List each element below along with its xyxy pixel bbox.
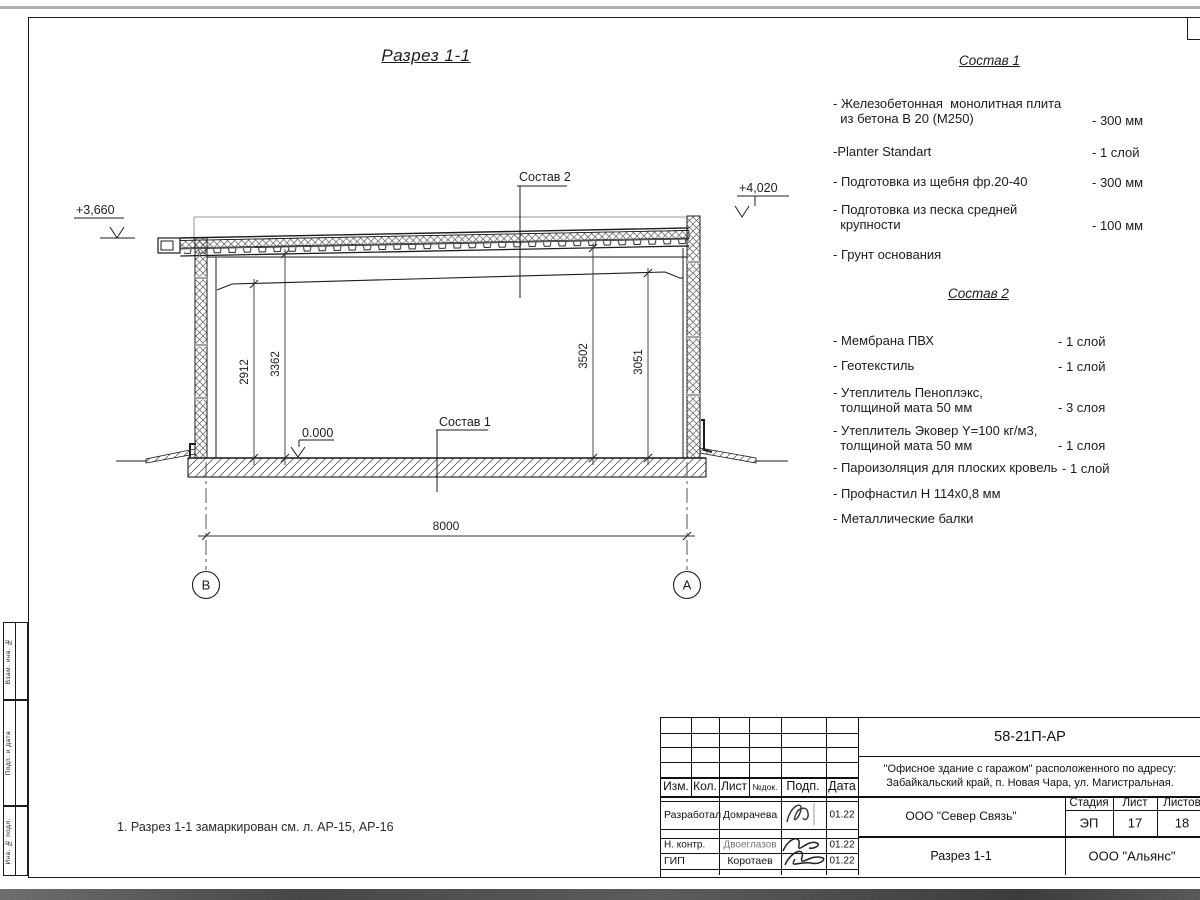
composition1-value: - 300 мм xyxy=(1092,113,1143,128)
right-apron xyxy=(700,448,788,463)
composition2-item: - Мембрана ПВХ xyxy=(833,334,1068,349)
dim-right-inner: 3051 xyxy=(633,349,645,375)
dim-left-outer: 3362 xyxy=(270,351,282,377)
tb-line xyxy=(1065,796,1066,875)
composition2-value: - 3 слоя xyxy=(1058,400,1105,415)
tb-designer: ООО "Альянс" xyxy=(1089,849,1176,864)
composition2-item: - Утеплитель Эковер Y=100 кг/м3, толщино… xyxy=(833,424,1068,453)
roof-beams xyxy=(207,257,687,290)
floor-slab xyxy=(188,458,706,477)
tb-project-line1: "Офисное здание с гаражом" расположенног… xyxy=(884,763,1177,775)
tb-line xyxy=(661,853,858,854)
elevation-right-value: +4,020 xyxy=(739,181,778,195)
axis-B: В xyxy=(193,462,220,599)
eave-drip-detail xyxy=(158,238,180,253)
tb-sheets-label: Листов xyxy=(1163,797,1200,809)
tb-line xyxy=(691,718,692,796)
composition2-item: - Профнастил Н 114х0,8 мм xyxy=(833,487,1068,502)
tb-col-list: Лист xyxy=(721,779,747,793)
signature xyxy=(783,800,825,828)
tb-sheet-title: Разрез 1-1 xyxy=(930,849,991,863)
tb-line xyxy=(661,796,858,798)
dim-span: 8000 xyxy=(433,519,460,533)
tb-role: ГИП xyxy=(664,855,685,867)
dimension-8000: 8000 xyxy=(198,519,695,540)
drawing-sheet: Взам. инв. № Подп. и дата Инв. № подл. xyxy=(0,0,1200,900)
tb-role: Н. контр. xyxy=(664,840,705,851)
tb-line xyxy=(858,836,1200,838)
composition1-value: - 1 слой xyxy=(1092,145,1140,160)
elevation-mark-left: +3,660 xyxy=(74,203,135,238)
composition2-value: - 1 слой xyxy=(1058,359,1106,374)
tb-line xyxy=(1065,810,1200,811)
tb-line xyxy=(858,796,1200,798)
tb-line xyxy=(661,869,858,870)
tb-sheet-value: 17 xyxy=(1128,816,1142,831)
composition2-item: - Металлические балки xyxy=(833,512,1068,527)
axis-A: А xyxy=(674,462,701,599)
signature xyxy=(779,835,827,873)
composition2-title: Состав 2 xyxy=(948,286,1009,301)
tb-line xyxy=(858,756,1200,757)
tb-date: 01.22 xyxy=(829,840,854,851)
dim-left-inner: 2912 xyxy=(239,359,251,385)
composition1-item: - Грунт основания xyxy=(833,248,1073,263)
dim-right-outer: 3502 xyxy=(578,343,590,369)
composition2-value: - 1 слоя xyxy=(1058,438,1105,453)
tb-line xyxy=(1113,796,1114,836)
dimension-2912: 2912 xyxy=(239,279,258,465)
tb-line xyxy=(661,733,858,734)
composition1-value: - 100 мм xyxy=(1092,218,1143,233)
sostav2-callout: Состав 2 xyxy=(519,170,571,184)
composition2-value: - 1 слой xyxy=(1058,334,1106,349)
tb-line xyxy=(661,829,858,830)
tb-stage-value: ЭП xyxy=(1080,816,1099,831)
tb-line xyxy=(661,747,858,748)
tb-col-podp: Подп. xyxy=(786,779,819,793)
composition1-item: - Железобетонная монолитная плита из бет… xyxy=(833,97,1073,126)
composition2-value: - 1 слой xyxy=(1062,461,1110,476)
composition1-value: - 300 мм xyxy=(1092,175,1143,190)
elevation-zero-value: 0.000 xyxy=(302,426,333,440)
dimension-3502: 3502 xyxy=(578,243,597,465)
elevation-mark-zero: 0.000 xyxy=(291,426,334,457)
left-wall xyxy=(190,238,216,458)
tb-date: 01.22 xyxy=(829,810,854,821)
dimension-3051: 3051 xyxy=(633,268,652,465)
tb-sheets-value: 18 xyxy=(1175,816,1189,831)
tb-name: Двоеглазов xyxy=(723,840,776,851)
tb-col-ndok: №док. xyxy=(753,782,778,792)
tb-line xyxy=(661,762,858,763)
tb-col-data: Дата xyxy=(828,779,856,793)
tb-project-line2: Забайкальский край, п. Новая Чара, ул. М… xyxy=(886,777,1174,789)
elevation-left-value: +3,660 xyxy=(76,203,115,217)
sostav1-callout: Состав 1 xyxy=(439,415,491,429)
tb-name: Домрачева xyxy=(723,809,777,821)
composition1-title: Состав 1 xyxy=(959,53,1020,68)
roof-assembly xyxy=(180,228,689,256)
composition1-item: - Подготовка из песка средней крупности xyxy=(833,203,1073,232)
tb-role: Разработал xyxy=(664,809,721,821)
composition1-item: -Planter Standart xyxy=(833,145,1073,160)
tb-doc-number: 58-21П-АР xyxy=(994,729,1066,745)
dimension-3362: 3362 xyxy=(270,249,289,465)
tb-stage-label: Стадия xyxy=(1069,797,1108,809)
composition2-item: - Геотекстиль xyxy=(833,359,1068,374)
left-apron xyxy=(116,449,195,463)
right-wall xyxy=(683,216,712,458)
composition1-item: - Подготовка из щебня фр.20-40 xyxy=(833,175,1073,190)
title-block: Изм. Кол. Лист №док. Подп. Дата Разработ… xyxy=(660,717,1200,878)
sheet-note: 1. Разрез 1-1 замаркирован см. л. АР-15,… xyxy=(117,820,394,834)
tb-date: 01.22 xyxy=(829,856,854,867)
elevation-mark-right: +4,020 xyxy=(735,181,789,217)
sostav1-leader: Состав 1 xyxy=(436,415,491,492)
view-title: Разрез 1-1 xyxy=(366,46,486,66)
tb-line xyxy=(1157,796,1158,836)
tb-line xyxy=(749,718,750,796)
axis-label-A: А xyxy=(683,578,692,593)
tb-contractor: ООО "Север Связь" xyxy=(905,809,1016,823)
composition2-item: - Пароизоляция для плоских кровель xyxy=(833,461,1068,476)
tb-col-kol: Кол. xyxy=(693,779,717,793)
tb-sheet-label: Лист xyxy=(1123,797,1148,809)
tb-name: Коротаев xyxy=(727,855,772,867)
tb-line xyxy=(661,801,858,802)
tb-col-izm: Изм. xyxy=(663,779,689,793)
axis-label-B: В xyxy=(202,578,211,593)
composition2-item: - Утеплитель Пеноплэкс, толщиной мата 50… xyxy=(833,386,1068,415)
